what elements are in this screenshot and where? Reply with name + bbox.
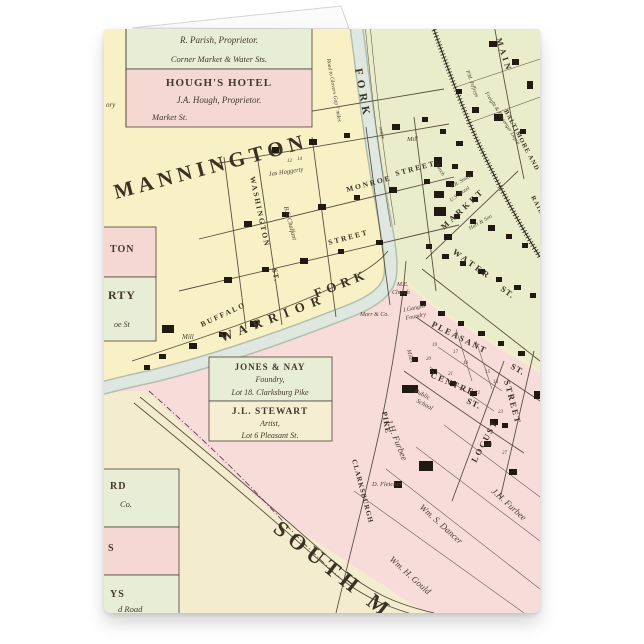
bottom-clipped-boxes: RD Co. S YS d Road [104,469,179,613]
lot-number: 14 [297,157,303,162]
name-label: Mill [181,333,194,341]
building [438,311,445,316]
building [422,117,428,122]
edge-fragment: ory [106,101,116,109]
building [309,139,317,145]
building [392,124,400,130]
building [224,277,232,283]
lot-number: 22 [475,391,481,396]
building [527,81,533,89]
building [440,129,446,134]
building [424,179,430,184]
building [144,365,150,370]
building [456,89,462,94]
building [300,258,308,264]
fragment-co: Co. [120,499,132,509]
product-photo: 1214192017162115142225232827 Jas Haggert… [0,0,644,644]
box-bg-pink [104,527,179,575]
building [444,234,452,240]
building [318,204,326,210]
name-label: M.E. [396,282,409,288]
jones-line2: Lot 18. Clarksburg Pike [230,388,308,397]
name-label: D. Fletcher [371,481,402,488]
building [498,341,504,346]
building [502,423,508,428]
jones-title: JONES & NAY [235,362,306,372]
name-label: Mill [406,136,418,143]
jones-line1: Foundry, [254,375,284,384]
building [458,321,464,326]
hotel-line1: J.A. Hough, Proprietor. [177,95,262,105]
stewart-line1: Artist, [259,419,280,428]
building [434,207,446,216]
building [338,249,344,254]
lot-number: 12 [287,159,293,164]
lot-number: 23 [498,410,504,415]
building [452,164,458,169]
map-front: 1214192017162115142225232827 Jas Haggert… [104,29,540,613]
building [534,391,540,399]
lot-number: 16 [463,361,469,366]
building [354,195,360,200]
building [262,267,269,272]
houghs-hotel-box: R. Parish, Proprietor. Corner Market & W… [106,29,312,127]
parish-line2: Corner Market & Water Sts. [171,54,267,64]
greeting-card[interactable]: 1214192017162115142225232827 Jas Haggert… [104,29,540,613]
fragment-ys: YS [110,589,125,600]
building [530,293,536,298]
building [376,240,383,245]
jones-stewart-box: JONES & NAY Foundry, Lot 18. Clarksburg … [209,357,332,441]
building [244,221,252,227]
fragment-rty: RTY [108,288,136,302]
lot-number: 20 [426,357,432,362]
building [509,469,517,475]
building [442,254,449,259]
building [472,107,479,113]
lot-number: 17 [453,350,459,355]
fragment-oest: oe St [114,320,131,329]
hotel-line2: Market St. [151,112,187,122]
building [514,285,521,290]
fragment-ton: TON [110,244,135,255]
building [189,343,197,349]
name-label: Church [392,290,410,296]
lot-number: 27 [502,451,508,456]
building [159,354,166,359]
building [496,277,502,282]
building [522,243,528,248]
building [518,351,525,356]
building [488,225,495,231]
building [162,325,174,333]
building [456,141,463,146]
lot-number: 19 [432,343,438,348]
building [434,191,444,198]
lot-number: 14 [493,380,499,385]
fragment-s: S [108,543,115,554]
building [478,331,485,336]
parish-line1: R. Parish, Proprietor. [179,35,258,45]
box-bg-green [104,277,156,341]
hotel-title: HOUGH'S HOTEL [166,77,272,89]
building [389,187,397,193]
building [344,133,350,138]
left-clipped-boxes: TON RTY oe St [104,227,156,341]
building [506,234,512,239]
box-bg-green [104,469,179,527]
stewart-title: J.L. STEWART [232,407,308,417]
stewart-line2: Lot 6 Pleasant St. [241,431,299,440]
building [426,244,432,249]
fragment-rd: RD [110,481,126,492]
name-label: Marr & Co. [359,312,389,318]
fragment-road: d Road [118,604,143,613]
lot-number: 15 [485,370,491,375]
flap-shape [132,6,349,29]
building [419,461,433,471]
